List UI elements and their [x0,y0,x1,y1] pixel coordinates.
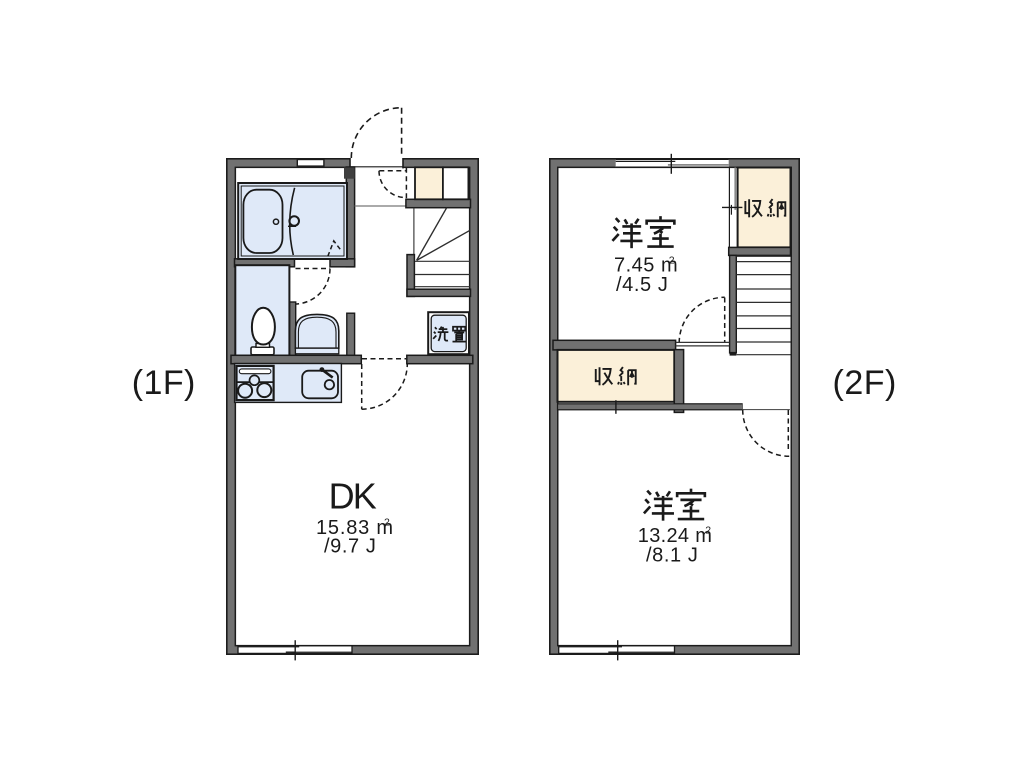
svg-text:(1F): (1F) [132,364,196,402]
svg-text:/8.1 J: /8.1 J [646,545,699,567]
svg-text:/4.5 J: /4.5 J [616,274,669,296]
svg-text:DK: DK [329,476,377,517]
svg-text:(2F): (2F) [833,364,897,402]
svg-text:2: 2 [669,254,675,266]
svg-text:/9.7 J: /9.7 J [324,535,377,557]
svg-text:2: 2 [705,525,711,537]
svg-text:2: 2 [384,517,390,529]
